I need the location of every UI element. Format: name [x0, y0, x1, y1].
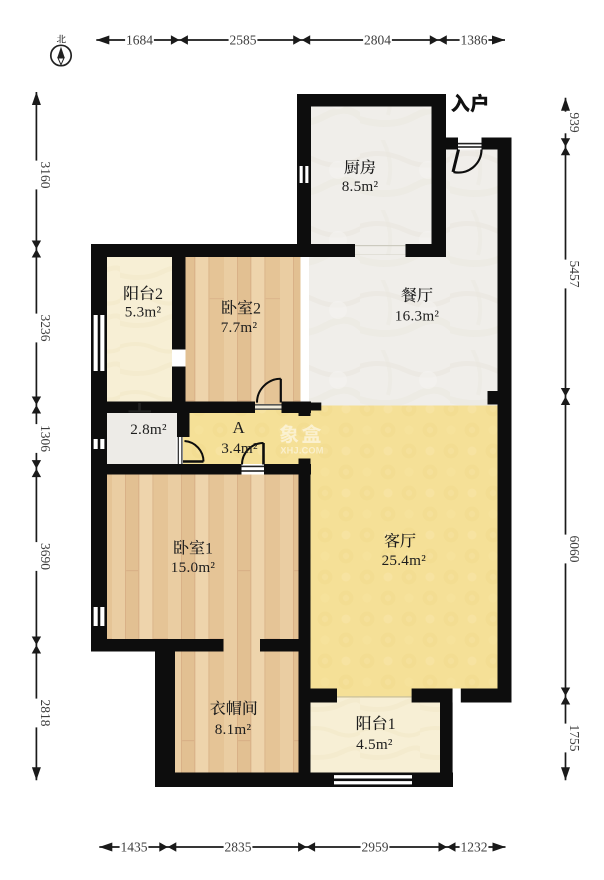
svg-text:1232: 1232 [461, 840, 488, 855]
svg-text:939: 939 [567, 112, 582, 133]
svg-text:2835: 2835 [225, 840, 252, 855]
svg-text:3690: 3690 [38, 543, 53, 570]
svg-text:3160: 3160 [38, 162, 53, 189]
svg-text:XHJ.COM: XHJ.COM [280, 445, 323, 455]
svg-text:1: 1 [388, 716, 396, 733]
svg-text:15.0m²: 15.0m² [171, 559, 216, 576]
svg-text:3236: 3236 [38, 315, 53, 342]
svg-text:1386: 1386 [461, 33, 488, 48]
svg-text:1684: 1684 [126, 33, 153, 48]
svg-text:8.1m²: 8.1m² [215, 721, 252, 738]
svg-text:2585: 2585 [230, 33, 257, 48]
svg-text:3.4m²: 3.4m² [221, 440, 258, 457]
svg-text:2818: 2818 [38, 700, 53, 727]
svg-text:1306: 1306 [38, 425, 53, 452]
svg-text:5.3m²: 5.3m² [125, 304, 162, 321]
svg-text:5457: 5457 [567, 261, 582, 288]
svg-text:8.5m²: 8.5m² [342, 178, 379, 195]
svg-text:2804: 2804 [364, 33, 391, 48]
svg-text:7.7m²: 7.7m² [221, 319, 258, 336]
svg-text:1: 1 [205, 540, 213, 557]
svg-text:2959: 2959 [362, 840, 389, 855]
svg-text:A: A [233, 418, 246, 437]
svg-text:2.8m²: 2.8m² [130, 421, 167, 438]
svg-text:4.5m²: 4.5m² [356, 736, 393, 753]
svg-text:1755: 1755 [567, 725, 582, 752]
svg-text:2: 2 [253, 300, 261, 317]
svg-text:6060: 6060 [567, 536, 582, 563]
svg-text:16.3m²: 16.3m² [395, 308, 440, 325]
svg-text:2: 2 [155, 286, 163, 303]
svg-text:1435: 1435 [121, 840, 148, 855]
svg-text:25.4m²: 25.4m² [382, 552, 427, 569]
